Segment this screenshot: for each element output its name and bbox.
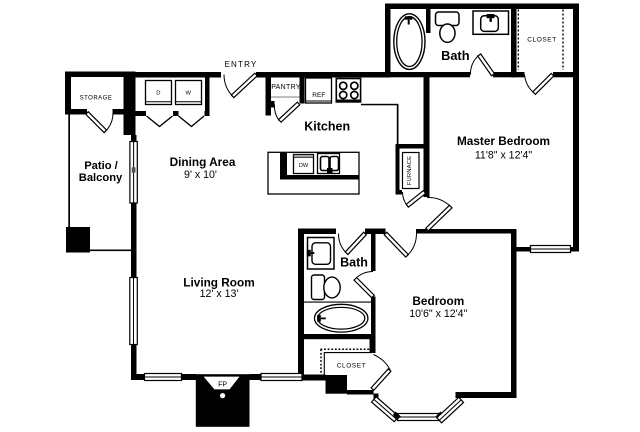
svg-text:Bath: Bath (340, 255, 368, 269)
svg-text:DW: DW (299, 163, 309, 169)
svg-text:D: D (156, 91, 160, 97)
svg-text:9' x 10': 9' x 10' (184, 169, 217, 181)
svg-text:Balcony: Balcony (79, 172, 123, 184)
svg-text:W: W (186, 91, 192, 97)
svg-text:Bath: Bath (441, 48, 470, 63)
svg-text:CLOSET: CLOSET (527, 37, 557, 44)
svg-text:FP: FP (218, 382, 227, 389)
svg-text:FURNACE: FURNACE (407, 156, 413, 185)
svg-text:Master Bedroom: Master Bedroom (457, 134, 550, 148)
svg-text:Kitchen: Kitchen (304, 119, 350, 133)
svg-text:10'6" x 12'4": 10'6" x 12'4" (409, 308, 467, 320)
svg-text:ENTRY: ENTRY (225, 60, 258, 69)
svg-text:Bedroom: Bedroom (412, 294, 464, 308)
svg-text:PANTRY: PANTRY (271, 84, 301, 91)
svg-text:11'8" x 12'4": 11'8" x 12'4" (475, 149, 533, 161)
svg-text:12' x 13': 12' x 13' (200, 288, 239, 300)
svg-text:CLOSET: CLOSET (337, 362, 367, 369)
svg-text:Patio /: Patio / (84, 160, 118, 172)
svg-text:REF: REF (312, 92, 325, 99)
svg-text:STORAGE: STORAGE (80, 96, 113, 102)
svg-text:Dining Area: Dining Area (170, 155, 236, 169)
